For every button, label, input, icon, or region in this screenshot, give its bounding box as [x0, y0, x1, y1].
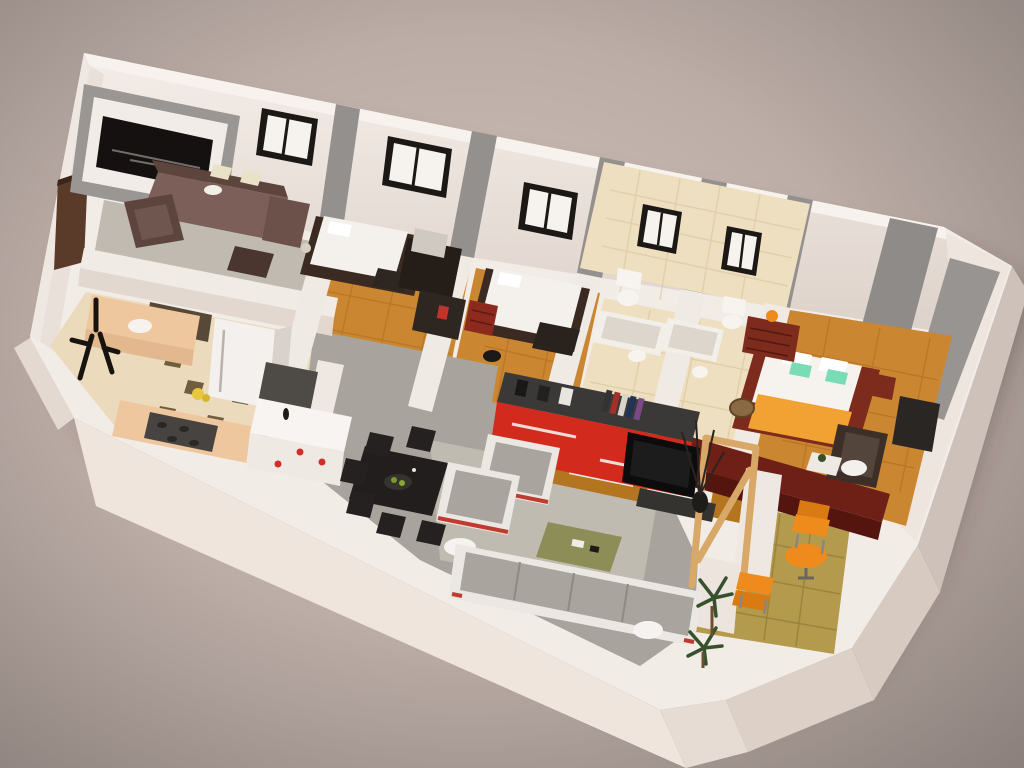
- window-bathroom1: [637, 204, 682, 254]
- master-floor-tv-unit: [892, 396, 940, 452]
- kitchen-sink: [128, 319, 152, 333]
- candle: [412, 468, 416, 472]
- table-bowl: [384, 474, 412, 490]
- table-plant: [818, 454, 826, 462]
- sink2: [692, 366, 708, 378]
- orange-bistro-table: [785, 544, 827, 568]
- fruit-green: [399, 480, 405, 486]
- deco-bowl: [204, 185, 222, 195]
- basket: [730, 399, 754, 417]
- oval-side-table: [841, 460, 867, 476]
- sink1: [628, 350, 646, 362]
- window-bathroom2: [721, 226, 762, 276]
- oval-side-table: [633, 621, 663, 639]
- fruit-green: [391, 477, 397, 483]
- island-red-knob: [297, 449, 304, 456]
- wine-bottle: [283, 408, 289, 420]
- toilet2-bowl: [722, 315, 742, 329]
- toilet1-bowl: [617, 290, 639, 306]
- round-stool: [483, 350, 501, 362]
- bed2-drawer-chest: [464, 300, 498, 336]
- island-red-knob: [319, 459, 326, 466]
- apartment-isometric-scene: [0, 0, 1024, 768]
- dresser-lamp: [766, 310, 778, 322]
- fruit: [202, 394, 210, 402]
- floorplan-3d-render: [0, 0, 1024, 768]
- island-red-knob: [275, 461, 282, 468]
- plant-vase: [692, 491, 708, 513]
- bed1-lamp: [301, 243, 311, 253]
